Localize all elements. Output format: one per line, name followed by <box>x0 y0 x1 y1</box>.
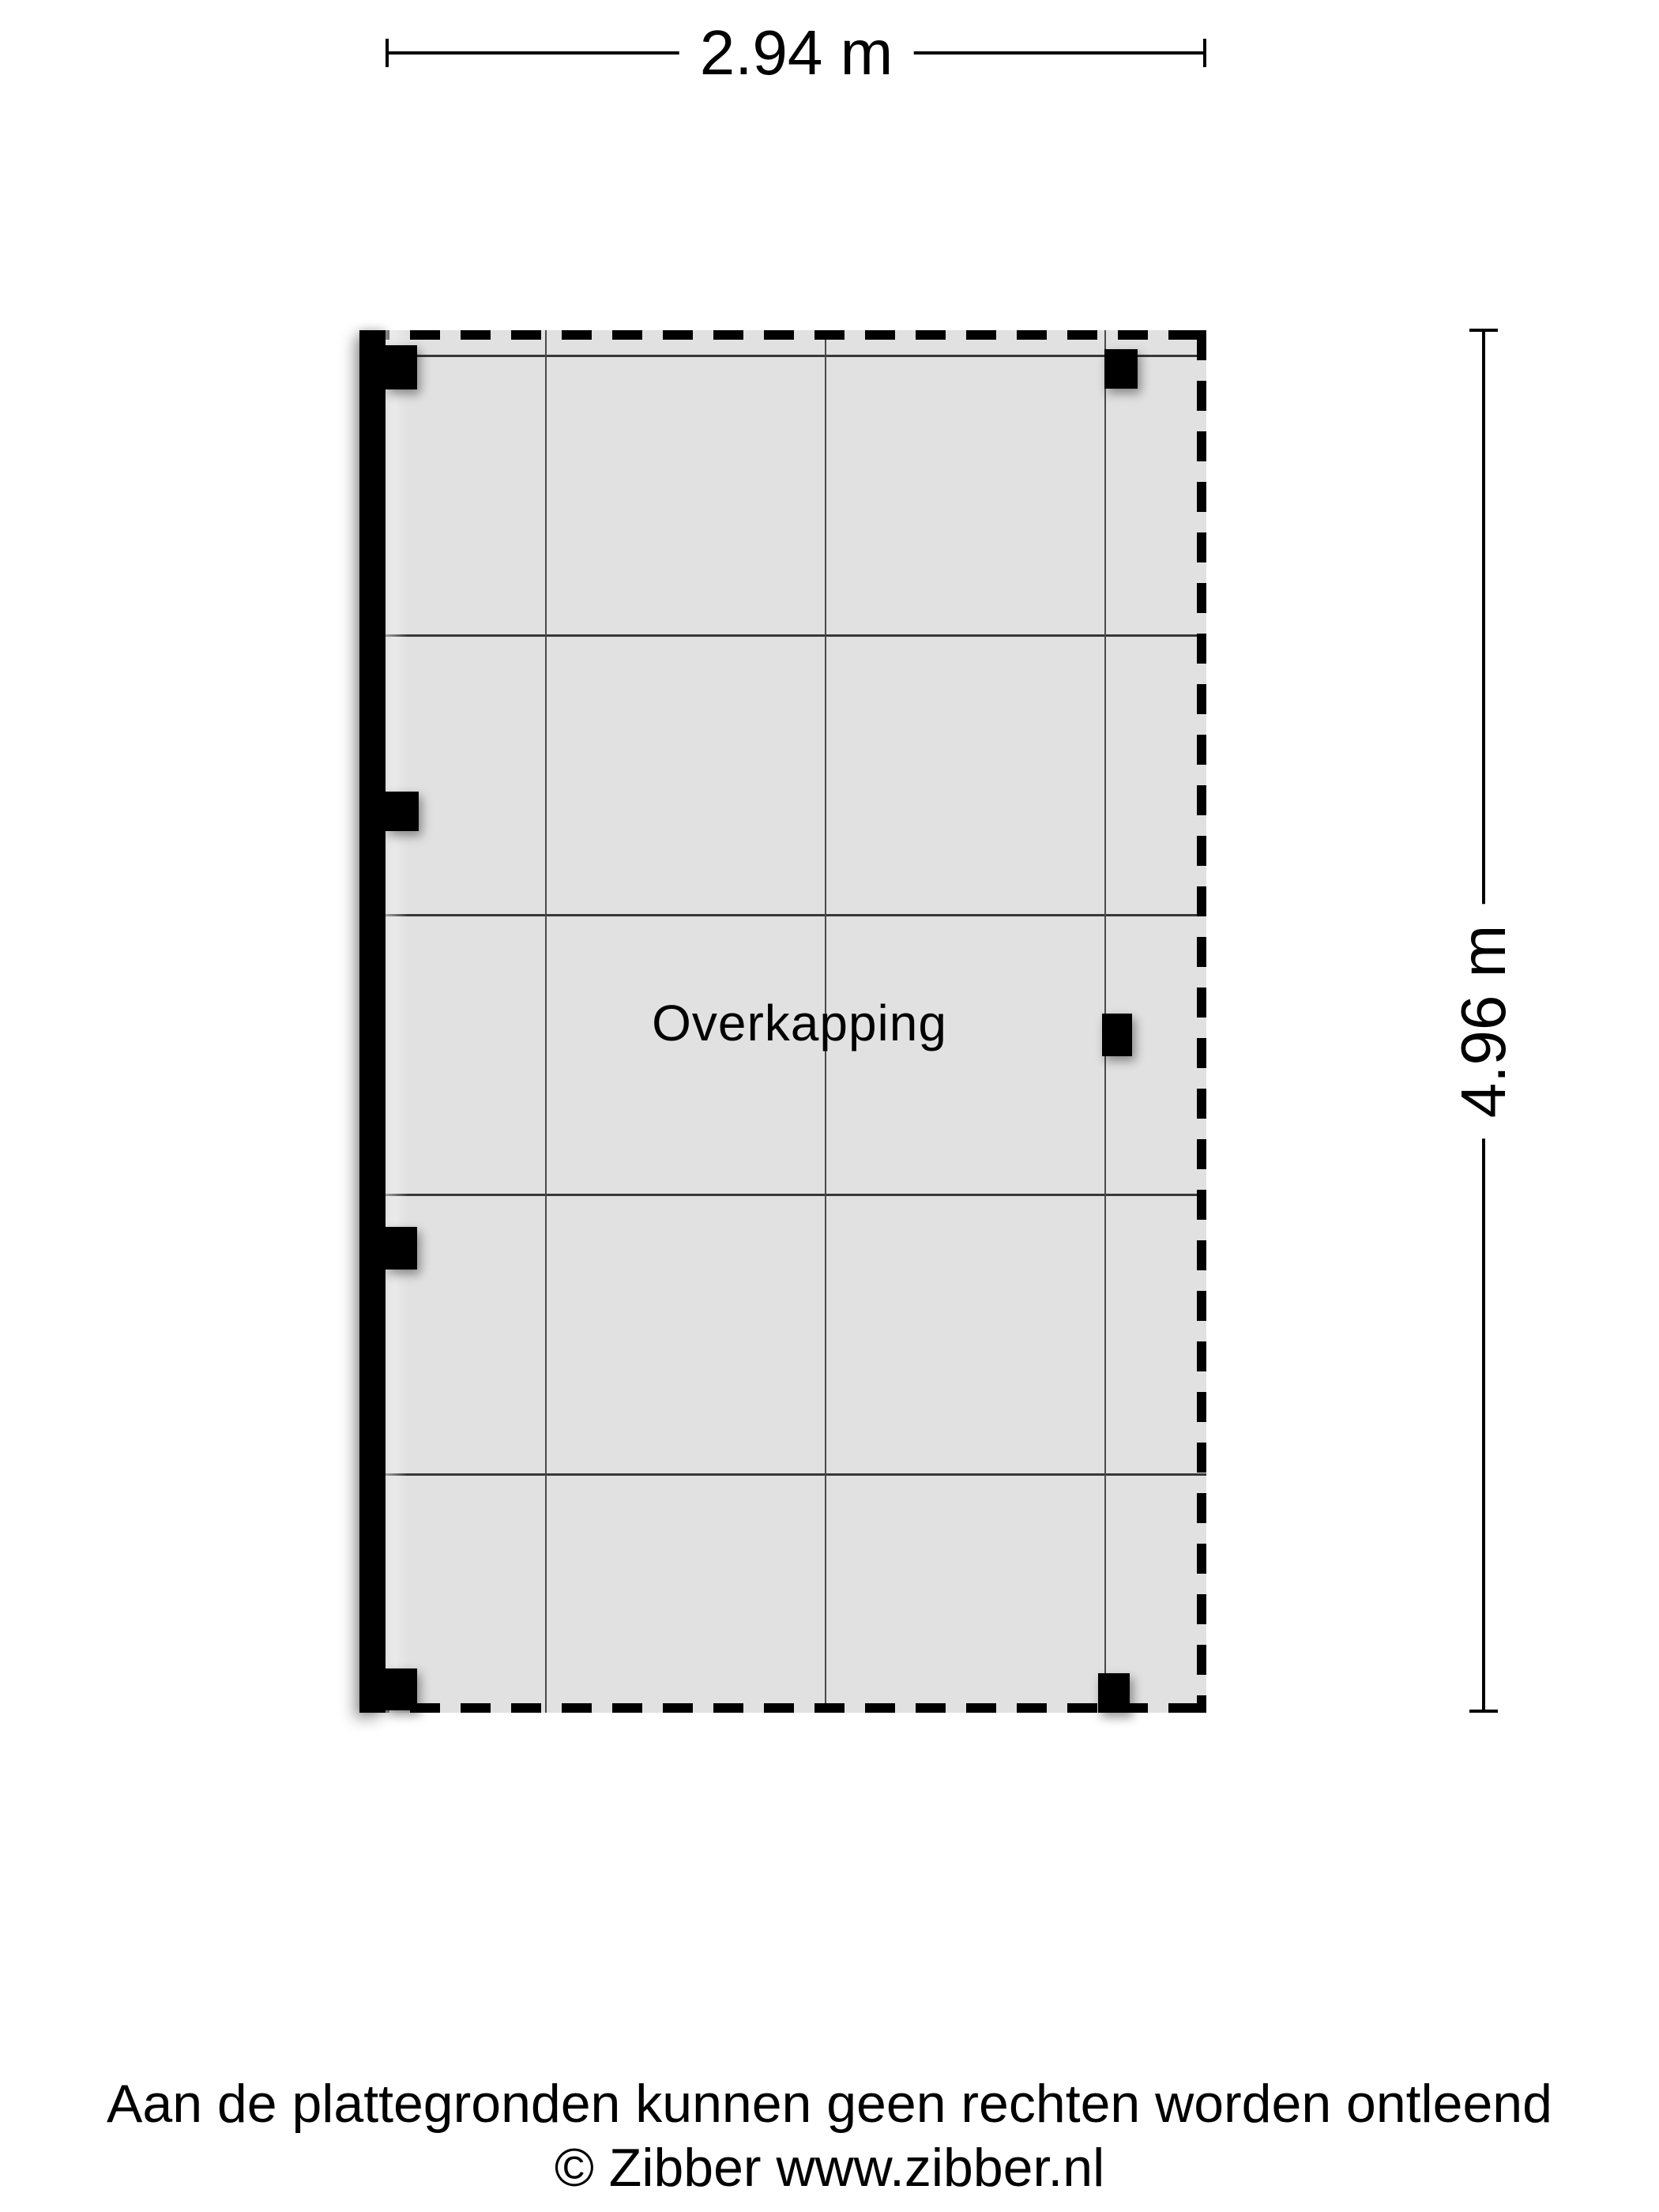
copyright-text: © Zibber www.zibber.nl <box>0 2141 1659 2195</box>
support-post-left-upper <box>386 792 419 831</box>
support-post-middle-right <box>1102 1014 1132 1056</box>
dimension-top-tick-left <box>386 39 389 67</box>
dimension-right-label: 4.96 m <box>1449 905 1518 1139</box>
support-post-top-right <box>1104 349 1138 389</box>
floorplan-sheet: 2.94 m Overkapping 4.96 m <box>0 0 1659 2212</box>
dimension-right-tick-bottom <box>1469 1710 1498 1713</box>
support-post-bottom-left <box>386 1668 417 1710</box>
grid-line-horizontal <box>359 634 1206 637</box>
support-post-left-lower <box>386 1227 417 1270</box>
grid-line-horizontal <box>359 355 1206 357</box>
grid-line-horizontal <box>359 1473 1206 1476</box>
grid-line-vertical <box>545 330 547 1713</box>
grid-line-horizontal <box>359 1194 1206 1196</box>
wall-highlight <box>386 330 408 1713</box>
dimension-top-tick-right <box>1203 39 1206 67</box>
dimension-right-tick-top <box>1469 329 1498 332</box>
dashed-border-bottom <box>359 1703 1206 1713</box>
dashed-border-right <box>1197 330 1206 1713</box>
left-wall <box>359 330 386 1713</box>
support-post-top-left <box>386 345 417 389</box>
overkapping-floor-area: Overkapping <box>359 330 1206 1713</box>
support-post-bottom-right <box>1098 1673 1130 1713</box>
room-label: Overkapping <box>652 994 947 1052</box>
dimension-top-label: 2.94 m <box>679 18 914 88</box>
disclaimer-text: Aan de plattegronden kunnen geen rechten… <box>0 2077 1659 2131</box>
dashed-border-top <box>359 330 1206 340</box>
grid-line-horizontal <box>359 914 1206 916</box>
